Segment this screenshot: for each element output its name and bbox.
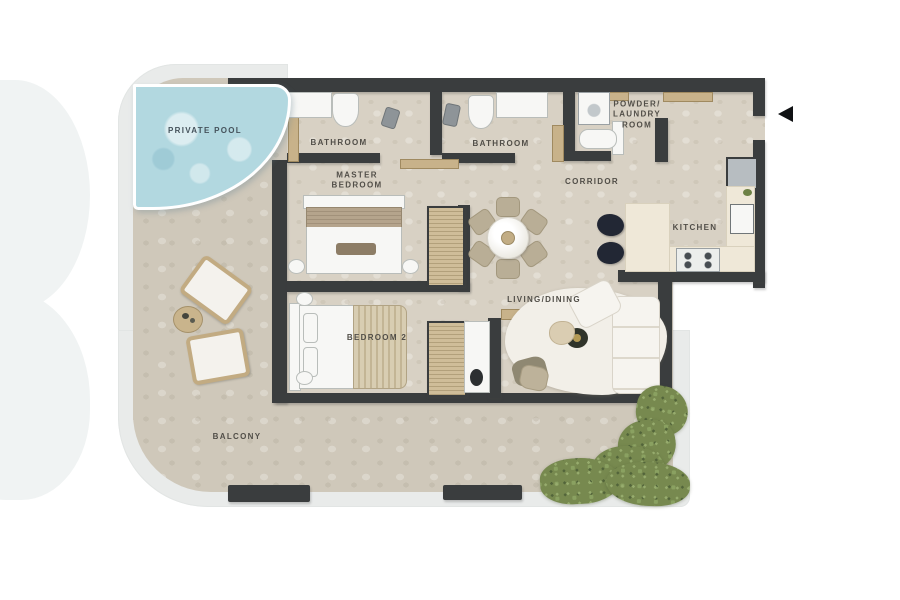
label-text: LAUNDRY <box>613 110 661 120</box>
nightstand <box>288 259 305 274</box>
background-shape <box>0 80 90 310</box>
door-leaf-bathroom1 <box>400 159 459 169</box>
wall-bathroom-divider <box>430 92 442 155</box>
floor-plan: PRIVATE POOL BATHROOM BATHROOM POWDER/ L… <box>0 0 900 600</box>
powder-basin <box>579 129 617 149</box>
kitchen-plant <box>743 189 752 196</box>
label-corridor: CORRIDOR <box>565 177 619 187</box>
door-leaf-bathroom2 <box>552 125 564 162</box>
balcony-side-table <box>173 306 203 333</box>
wall-bathroom1-bottom <box>287 153 380 163</box>
balcony-post <box>443 485 522 500</box>
wall-left-lower <box>272 160 287 403</box>
label-text: ROOM <box>613 120 661 130</box>
wall-right-upper <box>753 92 765 116</box>
dining-chair <box>496 197 520 217</box>
label-text: BATHROOM <box>311 138 368 148</box>
background-shape <box>0 290 90 500</box>
label-bathroom-1: BATHROOM <box>311 138 368 148</box>
label-kitchen: KITCHEN <box>673 223 718 233</box>
label-balcony: BALCONY <box>213 432 262 442</box>
bedroom2-pillow <box>303 313 318 343</box>
bathroom2-sink-counter <box>496 92 548 118</box>
label-bathroom-2: BATHROOM <box>473 139 530 149</box>
entrance-arrow-icon <box>778 106 793 122</box>
table-centerpiece <box>501 231 515 245</box>
nightstand <box>296 292 313 306</box>
label-text: POWDER/ <box>613 99 661 109</box>
label-text: BATHROOM <box>473 139 530 149</box>
wall-ledge-2 <box>663 92 713 102</box>
dining-chair <box>496 259 520 279</box>
wall-top <box>228 78 765 92</box>
label-bedroom-2: BEDROOM 2 <box>347 333 407 343</box>
label-text: BEDROOM <box>332 181 383 191</box>
entrance-threshold <box>753 115 765 140</box>
side-table-decor <box>190 318 195 323</box>
label-text: BALCONY <box>213 432 262 442</box>
bedroom2-blanket <box>353 305 407 389</box>
label-text: BEDROOM 2 <box>347 333 407 343</box>
label-living-dining: LIVING/DINING <box>507 295 581 305</box>
label-text: CORRIDOR <box>565 177 619 187</box>
lounge-chair-balcony <box>185 327 251 385</box>
master-bed-band <box>306 207 402 229</box>
label-private-pool: PRIVATE POOL <box>168 126 242 136</box>
label-text: MASTER <box>332 171 383 181</box>
side-table-decor <box>182 313 189 319</box>
label-text: PRIVATE POOL <box>168 126 242 136</box>
bathroom2-toilet <box>468 95 494 129</box>
kitchen-sink <box>730 204 754 234</box>
bathroom1-sink-counter <box>288 92 332 118</box>
master-wardrobe <box>427 206 465 287</box>
stove <box>676 248 720 272</box>
door-leaf-master-balcony <box>288 117 299 162</box>
label-powder-laundry: POWDER/ LAUNDRY ROOM <box>613 99 661 130</box>
shelf-unit-basin <box>470 369 483 386</box>
label-text: KITCHEN <box>673 223 718 233</box>
label-master-bedroom: MASTER BEDROOM <box>332 171 383 192</box>
wall-powder-left <box>563 92 575 153</box>
balcony-post <box>228 485 310 502</box>
bathroom1-toilet <box>332 93 359 127</box>
nightstand <box>402 259 419 274</box>
bedroom2-wardrobe <box>427 321 467 397</box>
master-bed-throw <box>336 243 376 255</box>
wall-bottom <box>275 393 672 403</box>
washing-machine <box>578 92 610 125</box>
wall-powder-bottom <box>563 151 611 161</box>
nightstand <box>296 371 313 385</box>
label-text: LIVING/DINING <box>507 295 581 305</box>
kitchen-peninsula <box>625 203 670 272</box>
